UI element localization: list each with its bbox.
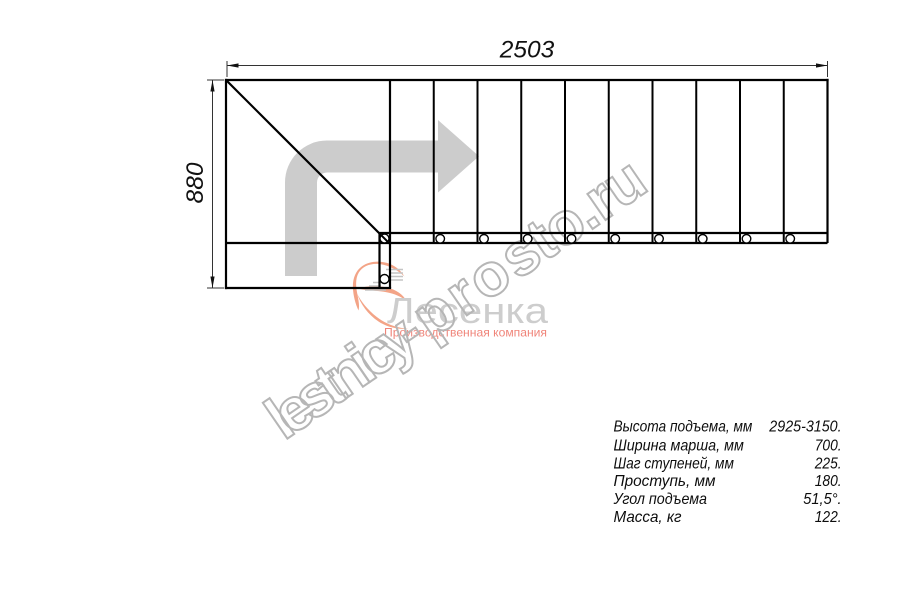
svg-text:180.: 180. (815, 473, 842, 490)
svg-text:225.: 225. (814, 455, 842, 472)
svg-text:Масса, кг: Масса, кг (614, 509, 682, 526)
svg-text:Ширина марша, мм: Ширина марша, мм (614, 437, 744, 454)
svg-text:2503: 2503 (499, 37, 555, 64)
svg-text:Шаг ступеней, мм: Шаг ступеней, мм (614, 455, 734, 472)
svg-text:Угол подъема: Угол подъема (613, 491, 707, 508)
svg-text:700.: 700. (815, 437, 842, 454)
svg-text:122.: 122. (815, 509, 842, 526)
svg-text:51,5°.: 51,5°. (803, 491, 841, 508)
svg-text:880: 880 (182, 162, 209, 203)
svg-text:Высота подъема, мм: Высота подъема, мм (614, 419, 753, 436)
svg-text:2925-3150.: 2925-3150. (768, 419, 841, 436)
svg-text:Проступь, мм: Проступь, мм (614, 473, 716, 490)
